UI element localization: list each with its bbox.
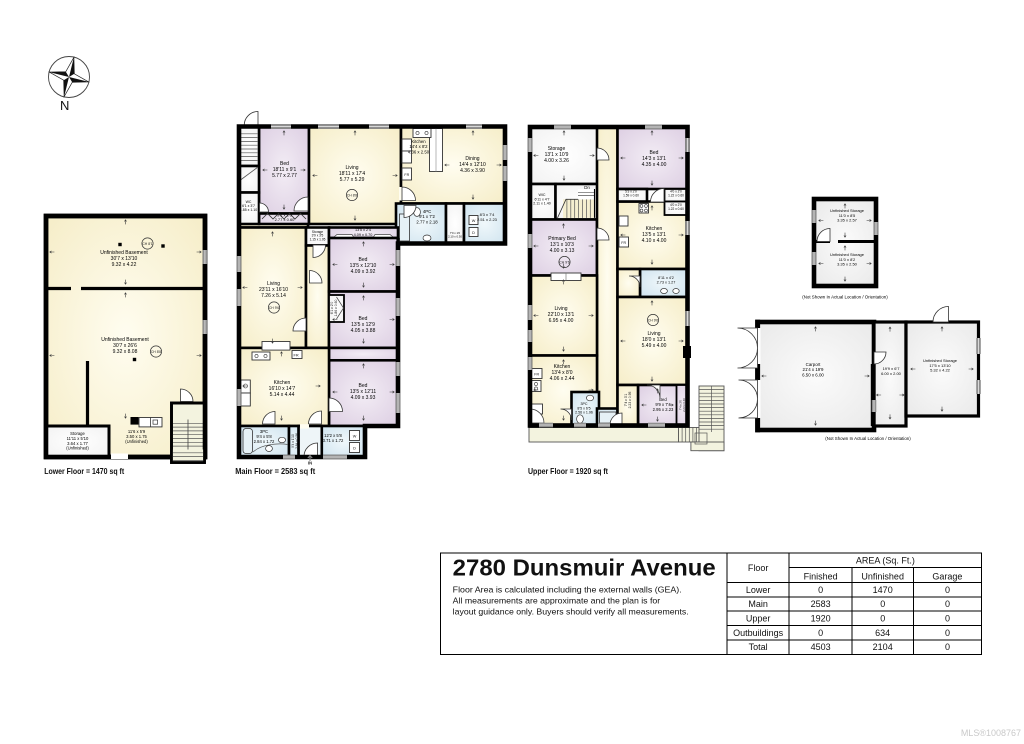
svg-text:0: 0 xyxy=(945,614,950,624)
svg-text:Dn: Dn xyxy=(584,185,590,190)
svg-text:Upper: Upper xyxy=(746,614,771,624)
svg-text:Main: Main xyxy=(748,599,768,609)
svg-text:Lower Floor = 1470 sq ft: Lower Floor = 1470 sq ft xyxy=(44,467,124,476)
svg-text:Main Floor = 2583 sq ft: Main Floor = 2583 sq ft xyxy=(235,467,315,476)
svg-text:CH 8'1: CH 8'1 xyxy=(142,242,152,246)
svg-text:2780 Dunsmuir Avenue: 2780 Dunsmuir Avenue xyxy=(453,555,716,581)
svg-text:(Not Shown In Actual Location: (Not Shown In Actual Location / Orientat… xyxy=(825,436,911,441)
svg-text:Total: Total xyxy=(749,642,768,652)
svg-text:0: 0 xyxy=(818,628,823,638)
svg-text:CH 9'6: CH 9'6 xyxy=(559,260,569,264)
svg-text:8'11 x 4'22.73 x 1.27: 8'11 x 4'22.73 x 1.27 xyxy=(657,276,676,285)
svg-text:11'6 x 5'93.50 x 1.75(Unfinish: 11'6 x 5'93.50 x 1.75(Unfinished) xyxy=(125,429,148,444)
svg-text:19'9 x 6'76.00 x 2.00: 19'9 x 6'76.00 x 2.00 xyxy=(881,366,902,376)
svg-text:All measurements are approxima: All measurements are approximate and the… xyxy=(453,597,661,606)
svg-text:CH 8'8: CH 8'8 xyxy=(347,193,357,197)
svg-text:Floor: Floor xyxy=(748,563,769,573)
svg-text:CH 9'6: CH 9'6 xyxy=(269,306,279,310)
svg-text:0: 0 xyxy=(945,585,950,595)
svg-text:2583: 2583 xyxy=(811,599,831,609)
svg-text:Floor Area is calculated inclu: Floor Area is calculated including the e… xyxy=(453,586,682,595)
svg-text:7'4 x 3'12.23 x 0.95: 7'4 x 3'12.23 x 0.95 xyxy=(624,391,632,408)
svg-text:5'3 x 2'01.59 x 0.60: 5'3 x 2'01.59 x 0.60 xyxy=(623,190,639,198)
svg-text:0: 0 xyxy=(818,585,823,595)
svg-text:Primary Bed13'1 x 10'34.00 x 3: Primary Bed13'1 x 10'34.00 x 3.13 xyxy=(548,236,576,254)
svg-text:W: W xyxy=(353,434,357,438)
svg-text:CH 9'6: CH 9'6 xyxy=(648,318,658,322)
svg-text:AREA (Sq. Ft.): AREA (Sq. Ft.) xyxy=(856,556,915,566)
svg-text:N: N xyxy=(60,98,69,113)
svg-text:layout guidance only. Buyers s: layout guidance only. Buyers should veri… xyxy=(453,608,689,617)
svg-text:Unfinished: Unfinished xyxy=(861,571,904,581)
svg-text:6'1 x 2'01.86 x 0.60: 6'1 x 2'01.86 x 0.60 xyxy=(330,299,338,316)
svg-text:FR: FR xyxy=(404,173,409,177)
svg-text:FR: FR xyxy=(294,354,299,358)
svg-text:CH 8'8: CH 8'8 xyxy=(151,350,161,354)
svg-text:Outbuildings: Outbuildings xyxy=(733,628,784,638)
svg-text:4503: 4503 xyxy=(811,642,831,652)
svg-text:4'0 x 2'01.22 x 0.60: 4'0 x 2'01.22 x 0.60 xyxy=(668,190,684,198)
svg-text:Upper Floor = 1920 sq ft: Upper Floor = 1920 sq ft xyxy=(528,467,608,476)
svg-text:IN: IN xyxy=(308,461,313,466)
svg-text:MLS®1008767: MLS®1008767 xyxy=(961,728,1021,738)
svg-text:1920: 1920 xyxy=(811,614,831,624)
svg-text:FR: FR xyxy=(534,373,539,377)
svg-text:Lower: Lower xyxy=(746,585,771,595)
svg-text:13'5 x 2'44.09 x 0.70: 13'5 x 2'44.09 x 0.70 xyxy=(354,228,373,237)
svg-text:FR: FR xyxy=(621,241,626,245)
svg-text:634: 634 xyxy=(875,628,890,638)
svg-text:D: D xyxy=(472,231,475,235)
svg-text:0: 0 xyxy=(945,599,950,609)
svg-text:W: W xyxy=(472,219,476,223)
svg-text:12'2 x 5'83.71 x 1.72: 12'2 x 5'83.71 x 1.72 xyxy=(323,433,344,443)
svg-text:0: 0 xyxy=(945,628,950,638)
svg-text:0: 0 xyxy=(880,614,885,624)
svg-text:D: D xyxy=(353,446,356,450)
svg-text:Garage: Garage xyxy=(932,571,962,581)
svg-text:Finished: Finished xyxy=(804,571,838,581)
svg-text:(Not Shown In Actual Location: (Not Shown In Actual Location / Orientat… xyxy=(802,295,888,300)
svg-text:1470: 1470 xyxy=(873,585,893,595)
svg-text:4'0 x 2'01.22 x 0.60: 4'0 x 2'01.22 x 0.60 xyxy=(668,203,684,211)
svg-text:9'4 x 1'102.84 x 0.56: 9'4 x 1'102.84 x 0.56 xyxy=(291,433,299,449)
svg-text:0: 0 xyxy=(945,642,950,652)
svg-text:0: 0 xyxy=(880,599,885,609)
svg-text:2104: 2104 xyxy=(873,642,893,652)
